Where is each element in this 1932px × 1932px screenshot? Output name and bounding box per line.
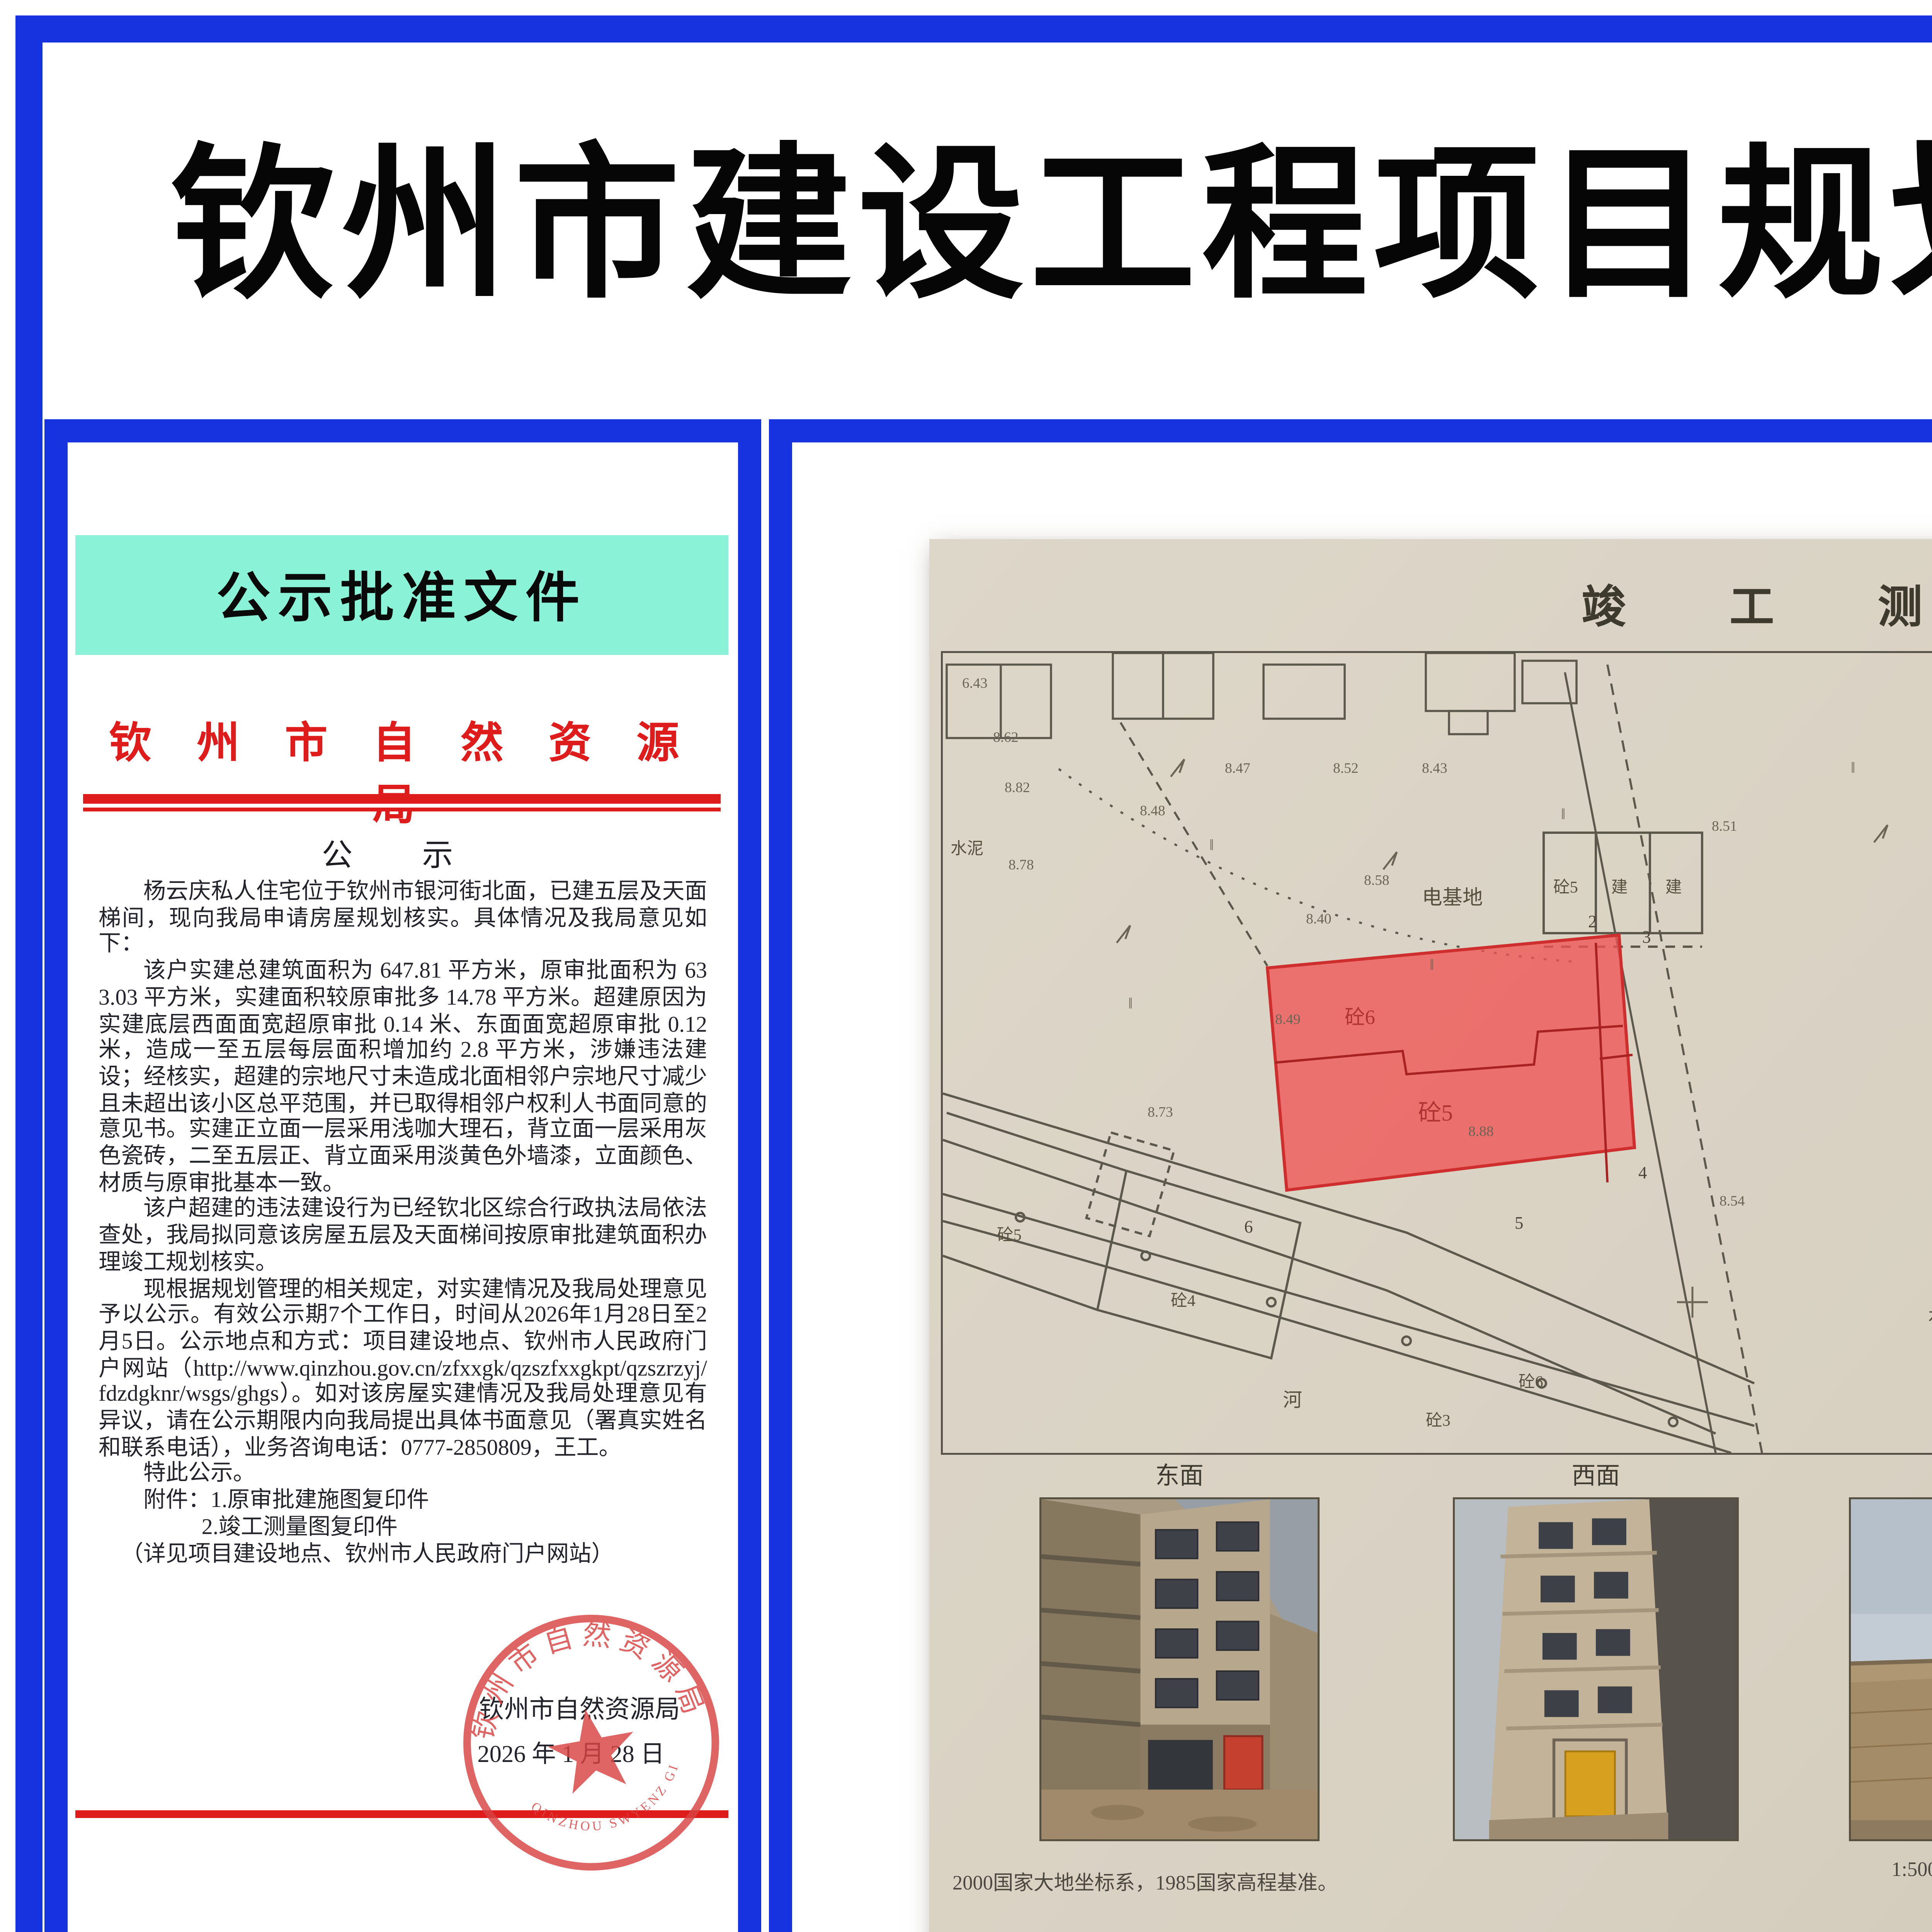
stamp-star-icon — [543, 1702, 642, 1796]
svg-text:8.52: 8.52 — [1333, 760, 1359, 776]
notice-board: 钦州市建设工程项目规划核实公示牌 公示批准文件 钦 州 市 自 然 资 源 局 … — [0, 0, 1932, 1932]
scale-label: 1:500 — [1891, 1861, 1932, 1882]
highlighted-parcel — [1267, 935, 1634, 1190]
svg-text:8.48: 8.48 — [1140, 803, 1165, 819]
svg-text:8.40: 8.40 — [1306, 911, 1332, 927]
red-divider — [83, 794, 721, 811]
svg-text:8.78: 8.78 — [1009, 857, 1034, 873]
paragraph-2: 该户实建总建筑面积为 647.81 平方米，原审批面积为 633.03 平方米，… — [99, 959, 707, 1197]
svg-text:‖: ‖ — [1128, 995, 1133, 1012]
survey-map-sheet: 竣 工 测 量 图 3402 — [929, 539, 1932, 1932]
datum-note: 2000国家大地坐标系，1985国家高程基准。 — [952, 1868, 1338, 1897]
svg-text:2: 2 — [1588, 912, 1597, 931]
photo-label-west: 西面 — [1453, 1455, 1739, 1492]
paragraph-4: 现根据规划管理的相关规定，对实建情况及我局处理意见予以公示。有效公示期7个工作日… — [99, 1276, 707, 1462]
photo-roof-view — [1849, 1497, 1932, 1841]
approval-documents-panel: 公示批准文件 钦 州 市 自 然 资 源 局 公 示 杨云庆私人住宅位于钦州市银… — [44, 419, 761, 1932]
svg-text:砼5: 砼5 — [1418, 1100, 1453, 1126]
svg-text:8.62: 8.62 — [993, 730, 1019, 745]
svg-text:8.54: 8.54 — [1719, 1193, 1745, 1209]
closing-line: 特此公示。 — [99, 1461, 707, 1488]
svg-text:建: 建 — [1665, 878, 1682, 896]
photo-west-facade — [1453, 1497, 1739, 1841]
svg-text:建: 建 — [1611, 878, 1628, 896]
notice-heading: 公 示 — [68, 829, 738, 875]
attachment-note: （详见项目建设地点、钦州市人民政府门户网站） — [99, 1541, 707, 1568]
svg-text:‖: ‖ — [1851, 759, 1855, 776]
svg-text:8.82: 8.82 — [1005, 780, 1030, 796]
svg-text:8.43: 8.43 — [1422, 760, 1447, 776]
svg-text:砼3: 砼3 — [1426, 1412, 1451, 1430]
svg-text:8.47: 8.47 — [1225, 760, 1250, 776]
attachment-2: 2.竣工测量图复印件 — [99, 1514, 707, 1541]
attachment-1: 附件：1.原审批建施图复印件 — [99, 1488, 707, 1515]
bureau-name: 钦 州 市 自 然 资 源 局 — [68, 709, 738, 833]
official-stamp-icon: 钦州市自然资源局 QINZHOU SWYENZ GIZ — [450, 1602, 732, 1884]
photo-label-east: 东面 — [1039, 1455, 1320, 1492]
svg-text:砼4: 砼4 — [1171, 1292, 1196, 1310]
sheet-title: 竣 工 测 量 图 — [929, 570, 1932, 636]
page-title: 钦州市建设工程项目规划核实公示牌 — [0, 89, 1932, 330]
svg-text:4: 4 — [1638, 1163, 1647, 1182]
svg-text:河: 河 — [1283, 1389, 1302, 1411]
svg-text:水泥: 水泥 — [951, 840, 983, 858]
svg-text:‖: ‖ — [1430, 956, 1434, 973]
svg-text:8.51: 8.51 — [1712, 818, 1737, 834]
paragraph-1: 杨云庆私人住宅位于钦州市银河街北面，已建五层及天面梯间，现向我局申请房屋规划核实… — [99, 879, 707, 959]
svg-text:8.88: 8.88 — [1468, 1124, 1494, 1139]
svg-text:8.49: 8.49 — [1275, 1012, 1301, 1027]
svg-text:砼5: 砼5 — [1553, 878, 1578, 896]
svg-text:‖: ‖ — [1209, 836, 1214, 854]
svg-text:电基地: 电基地 — [1422, 886, 1483, 909]
survey-map-panel: 竣 工 测 量 图 3402 — [769, 419, 1932, 1932]
photo-label-roof: 天面 — [1849, 1455, 1932, 1492]
svg-text:砼6: 砼6 — [1519, 1373, 1543, 1391]
site-plan-drawing: 2 3 4 5 6 电基地 砼6 砼5 水泥 水泥 河 砼5 砼4 砼3 砼6 — [941, 651, 1932, 1455]
svg-text:水泥: 水泥 — [1928, 1306, 1932, 1325]
svg-text:8.73: 8.73 — [1148, 1104, 1173, 1120]
svg-text:6.43: 6.43 — [962, 675, 988, 691]
svg-text:6: 6 — [1244, 1217, 1253, 1236]
notice-body: 杨云庆私人住宅位于钦州市银河街北面，已建五层及天面梯间，现向我局申请房屋规划核实… — [99, 879, 707, 1567]
svg-text:5: 5 — [1515, 1213, 1524, 1233]
svg-text:砼5: 砼5 — [997, 1226, 1022, 1244]
photo-east-facade — [1039, 1497, 1320, 1841]
paragraph-3: 该户超建的违法建设行为已经钦北区综合行政执法局依法查处，我局拟同意该房屋五层及天… — [99, 1197, 707, 1276]
svg-text:3: 3 — [1642, 927, 1651, 947]
svg-text:‖: ‖ — [1561, 805, 1565, 823]
svg-text:8.58: 8.58 — [1364, 872, 1389, 888]
approval-documents-header: 公示批准文件 — [75, 535, 728, 655]
svg-text:砼6: 砼6 — [1345, 1006, 1375, 1029]
